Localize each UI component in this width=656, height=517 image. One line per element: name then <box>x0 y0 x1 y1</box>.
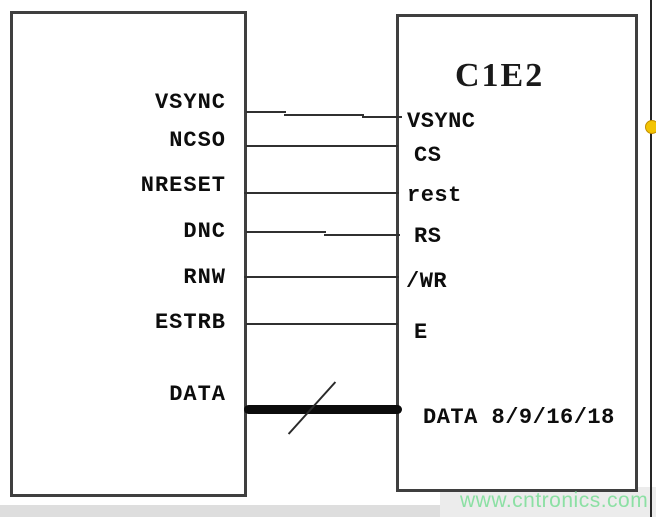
wire-vsync-seg3 <box>362 116 402 118</box>
watermark-text: www.cntronics.com <box>460 489 648 513</box>
chip-title: C1E2 <box>455 58 544 94</box>
wire-dnc-rs-seg2 <box>324 234 400 236</box>
wire-estrb-e <box>246 323 398 325</box>
pin-label-data-bus: DATA 8/9/16/18 <box>423 406 615 430</box>
wire-dnc-rs-seg1 <box>246 231 326 233</box>
pin-label-dnc: DNC <box>16 220 226 244</box>
schematic-canvas: C1E2 VSYNC NCSO NRESET DNC RNW ESTRB DAT… <box>0 0 656 517</box>
right-edge-line <box>650 0 652 517</box>
wire-vsync-seg1 <box>246 111 286 113</box>
pin-label-vsync-right: VSYNC <box>407 110 476 134</box>
pin-label-nreset: NRESET <box>16 174 226 198</box>
pin-label-vsync-left: VSYNC <box>16 91 226 115</box>
wire-vsync-seg2 <box>284 114 364 116</box>
host-controller-box <box>10 11 247 497</box>
data-bus-line <box>244 405 402 414</box>
pin-label-rest: rest <box>407 184 462 208</box>
yellow-marker-handle[interactable] <box>645 120 656 134</box>
wire-rnw-wr <box>244 276 399 278</box>
pin-label-e: E <box>414 321 428 345</box>
wire-nreset-rest <box>244 192 399 194</box>
pin-label-rnw: RNW <box>16 266 226 290</box>
pin-label-ncso: NCSO <box>16 129 226 153</box>
pin-label-cs: CS <box>414 144 441 168</box>
pin-label-estrb: ESTRB <box>16 311 226 335</box>
pin-label-wr: /WR <box>406 270 447 294</box>
wire-ncso-cs <box>246 145 398 147</box>
pin-label-rs: RS <box>414 225 441 249</box>
pin-label-data-left: DATA <box>16 383 226 407</box>
